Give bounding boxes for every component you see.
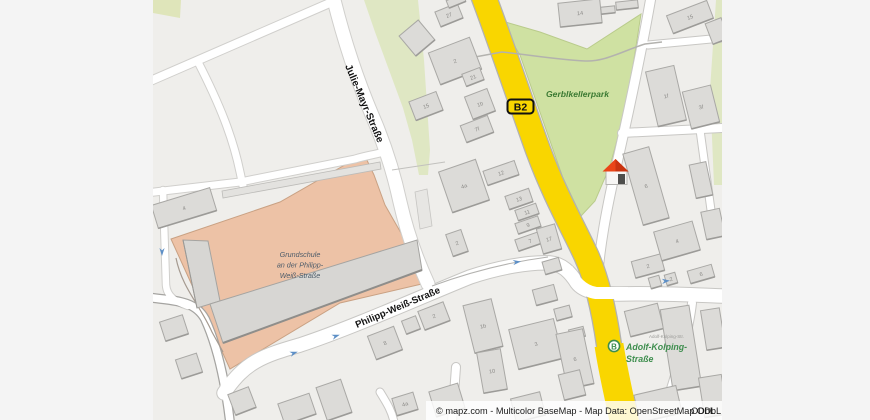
svg-text:Weiß-Straße: Weiß-Straße: [280, 271, 321, 280]
svg-text:Gerblkellerpark: Gerblkellerpark: [546, 89, 610, 99]
svg-text:Adolf-Kolping-Str.: Adolf-Kolping-Str.: [649, 334, 684, 339]
svg-text:Straße: Straße: [626, 354, 653, 364]
svg-text:10: 10: [489, 368, 496, 375]
svg-text:Adolf-Kolping-: Adolf-Kolping-: [625, 342, 687, 352]
svg-text:14: 14: [577, 11, 584, 18]
svg-text:B: B: [611, 343, 617, 352]
svg-text:© mapz.com - Multicolor BaseMa: © mapz.com - Multicolor BaseMap - Map Da…: [436, 406, 721, 416]
svg-text:Grundschule: Grundschule: [280, 250, 321, 259]
svg-text:ODbL: ODbL: [691, 406, 715, 416]
svg-text:B2: B2: [514, 102, 528, 114]
svg-text:an der Philipp-: an der Philipp-: [277, 261, 324, 270]
